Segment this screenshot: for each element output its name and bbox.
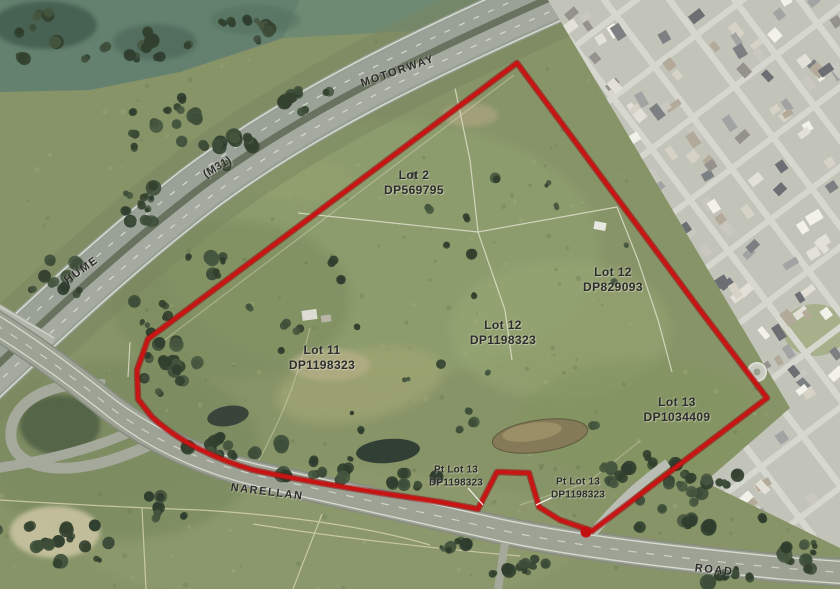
tree (309, 457, 319, 467)
speckle (422, 156, 426, 160)
speckle (518, 510, 520, 512)
tree (175, 376, 185, 386)
tree (60, 521, 73, 534)
tree (163, 107, 169, 113)
speckle (205, 379, 208, 382)
speckle (439, 395, 444, 400)
speckle (359, 294, 364, 299)
tree (190, 113, 203, 126)
speckle (457, 567, 461, 571)
speckle (573, 365, 578, 370)
tree (677, 481, 687, 491)
tree (33, 12, 41, 20)
tree (447, 547, 452, 552)
tree (76, 287, 83, 294)
speckle (140, 139, 143, 142)
speckle (171, 555, 174, 558)
tree (127, 216, 136, 225)
tree (43, 539, 54, 550)
tree (520, 558, 532, 570)
speckle (233, 364, 236, 367)
tree (15, 27, 22, 34)
speckle (546, 67, 550, 71)
boundary-corner-dot (581, 527, 592, 538)
speckle (576, 465, 581, 470)
speckle (470, 238, 474, 242)
speckle (98, 492, 102, 496)
tree (180, 513, 187, 520)
tree (120, 206, 130, 216)
tree (172, 365, 182, 375)
speckle (525, 366, 530, 371)
tree (50, 277, 60, 287)
speckle (35, 167, 40, 172)
tree (625, 244, 629, 248)
speckle (729, 532, 732, 535)
tree (544, 183, 548, 187)
tree (146, 34, 160, 48)
tree (349, 457, 354, 462)
speckle (558, 282, 562, 286)
tree (212, 139, 223, 150)
speckle (446, 305, 451, 310)
speckle (242, 258, 246, 262)
tree (123, 190, 129, 196)
tree (720, 572, 729, 581)
tree (149, 119, 163, 133)
speckle (132, 575, 135, 578)
tree (486, 370, 491, 375)
tree (198, 140, 208, 150)
speckle (528, 184, 532, 188)
tree (44, 7, 54, 17)
speckle (145, 308, 149, 312)
speckle (412, 303, 416, 307)
tree (156, 493, 164, 501)
speckle (377, 244, 380, 247)
speckle (573, 514, 577, 518)
tree (294, 86, 303, 95)
tree (129, 298, 139, 308)
speckle (614, 566, 619, 571)
speckle (575, 358, 578, 361)
homestead (301, 309, 317, 321)
tree (149, 195, 154, 200)
tree (297, 108, 306, 117)
speckle (587, 79, 589, 81)
tree (131, 143, 138, 150)
tree (184, 42, 192, 50)
tree (169, 338, 183, 352)
tree (140, 321, 144, 325)
speckle (614, 499, 616, 501)
tree (659, 505, 666, 512)
speckle (601, 304, 603, 306)
tree (177, 106, 185, 114)
speckle (356, 163, 361, 168)
speckle (592, 299, 594, 301)
tree (493, 175, 501, 183)
speckle (544, 164, 547, 167)
speckle (445, 444, 447, 446)
speckle (571, 407, 573, 409)
tree (799, 539, 810, 550)
tree (357, 426, 364, 433)
speckle (553, 354, 555, 356)
tree (218, 18, 224, 24)
speckle (323, 442, 327, 446)
speckle (48, 153, 52, 157)
speckle (5, 535, 8, 538)
speckle (240, 565, 243, 568)
speckle (136, 99, 139, 102)
speckle (703, 402, 705, 404)
speckle (257, 370, 262, 375)
tree (692, 498, 699, 505)
tree (643, 450, 652, 459)
tree (248, 448, 259, 459)
tree (282, 319, 291, 328)
tree (142, 374, 150, 382)
speckle (291, 440, 295, 444)
speckle (429, 278, 433, 282)
speckle (121, 109, 126, 114)
speckle (645, 471, 647, 473)
speckle (244, 399, 246, 401)
roundabout-island (754, 369, 761, 376)
tree (439, 360, 446, 367)
speckle (628, 322, 632, 326)
tree (350, 411, 354, 415)
bare-patch (290, 349, 370, 381)
speckle (442, 103, 444, 105)
tree (531, 564, 537, 570)
tree (634, 523, 643, 532)
tree (215, 272, 221, 278)
tree (224, 440, 234, 450)
speckle (43, 224, 46, 227)
speckle (398, 287, 400, 289)
tree (140, 215, 151, 226)
tree (781, 543, 792, 554)
speckle (543, 257, 545, 259)
tree (145, 322, 150, 327)
tree (60, 270, 74, 284)
speckle (433, 260, 436, 263)
tree (30, 286, 37, 293)
tree (530, 555, 537, 562)
tree (185, 253, 191, 259)
speckle (165, 409, 168, 412)
tree (159, 300, 167, 308)
tree (327, 259, 335, 267)
speckle (122, 553, 127, 558)
speckle (402, 236, 405, 239)
speckle (693, 463, 695, 465)
tree (466, 249, 477, 260)
speckle (581, 201, 584, 204)
speckle (576, 276, 581, 281)
tree (220, 257, 226, 263)
speckle (553, 467, 557, 471)
tree (317, 467, 327, 477)
tree (811, 550, 817, 556)
speckle (220, 65, 223, 68)
tree (680, 471, 687, 478)
speckle (546, 233, 551, 238)
tree (354, 324, 360, 330)
speckle (546, 354, 549, 357)
speckle (183, 583, 188, 588)
tree (129, 108, 137, 116)
speckle (730, 517, 734, 521)
speckle (188, 77, 193, 82)
tree (336, 275, 346, 285)
farm-shed (321, 314, 332, 322)
tree (154, 509, 162, 517)
speckle (363, 540, 367, 544)
speckle (304, 261, 308, 265)
speckle (549, 146, 552, 149)
tree (274, 439, 288, 453)
tree (410, 173, 416, 179)
speckle (145, 84, 149, 88)
speckle (108, 370, 110, 372)
tree (137, 201, 146, 210)
tree (38, 270, 51, 283)
speckle (165, 134, 169, 138)
tree (414, 481, 421, 488)
speckle (323, 515, 328, 520)
speckle (405, 321, 409, 325)
tree (71, 258, 84, 271)
tree (254, 18, 259, 23)
speckle (46, 216, 50, 220)
tree (611, 278, 618, 285)
speckle (229, 528, 233, 532)
speckle (532, 160, 536, 164)
speckle (342, 586, 345, 589)
tree (161, 357, 168, 364)
speckle (713, 389, 718, 394)
tree (336, 471, 350, 485)
tree (398, 478, 411, 491)
tree (554, 205, 559, 210)
speckle (273, 418, 276, 421)
tree (444, 242, 450, 248)
tree (648, 457, 658, 467)
speckle (565, 246, 569, 250)
tree (614, 470, 624, 480)
tree (522, 568, 528, 574)
speckle (513, 200, 517, 204)
speckle (379, 196, 383, 200)
speckle (787, 528, 790, 531)
tree (216, 433, 225, 442)
speckle (231, 569, 235, 573)
tree (172, 119, 182, 129)
tree (18, 52, 31, 65)
tree (681, 516, 692, 527)
speckle (108, 166, 112, 170)
aerial-cadastral-map: HUME (M31) MOTORWAY NARELLAN ROAD Lot 2 … (0, 0, 840, 589)
speckle (474, 320, 479, 325)
tree (465, 407, 472, 414)
tree (155, 388, 162, 395)
tree (759, 515, 767, 523)
tree (540, 558, 550, 568)
speckle (317, 586, 320, 589)
speckle (550, 346, 555, 351)
speckle (519, 218, 524, 223)
tree (148, 181, 158, 191)
speckle (570, 204, 574, 208)
speckle (622, 383, 626, 387)
tree (229, 132, 240, 143)
tree (472, 292, 476, 296)
speckle (734, 430, 737, 433)
speckle (113, 584, 116, 587)
speckle (278, 297, 281, 300)
tree (128, 130, 136, 138)
tree (103, 537, 115, 549)
speckle (491, 501, 495, 505)
tree (97, 558, 102, 563)
speckle (187, 525, 191, 529)
tree (464, 216, 470, 222)
tree (429, 470, 443, 484)
speckle (247, 58, 250, 61)
speckle (263, 73, 265, 75)
speckle (198, 403, 203, 408)
tree (278, 347, 285, 354)
tree (24, 522, 34, 532)
speckle (429, 228, 432, 231)
speckle (470, 482, 475, 487)
speckle (595, 91, 597, 93)
tree (124, 49, 136, 61)
tree (426, 206, 434, 214)
speckle (493, 241, 495, 243)
tree (397, 468, 408, 479)
tree (176, 136, 188, 148)
speckle (476, 475, 479, 478)
speckle (271, 217, 275, 221)
tree (262, 25, 274, 37)
speckle (425, 110, 427, 112)
tree (461, 538, 473, 550)
tree (49, 36, 61, 48)
tree (53, 559, 63, 569)
speckle (765, 413, 768, 416)
tree (154, 337, 165, 348)
tree (803, 564, 813, 574)
tree (802, 554, 812, 564)
speckle (573, 476, 575, 478)
speckle (501, 204, 506, 209)
speckle (539, 463, 544, 468)
speckle (412, 468, 416, 472)
speckle (562, 371, 566, 375)
tree (231, 453, 238, 460)
tree (456, 427, 463, 434)
tree (221, 160, 231, 170)
tree (205, 252, 219, 266)
speckle (127, 509, 132, 514)
tree (701, 520, 717, 536)
tree (155, 52, 165, 62)
speckle (313, 326, 316, 329)
tree (192, 360, 201, 369)
tree (33, 540, 44, 551)
tree (89, 519, 101, 531)
speckle (621, 270, 624, 273)
tree (60, 281, 71, 292)
speckle (554, 268, 558, 272)
tree (244, 17, 253, 26)
speckle (463, 353, 467, 357)
speckle (171, 304, 174, 307)
speckle (543, 380, 548, 385)
tree (226, 17, 235, 26)
tree (386, 476, 398, 488)
tree (745, 572, 753, 580)
tree (253, 35, 261, 43)
speckle (594, 411, 597, 414)
tree (468, 419, 477, 428)
speckle (121, 160, 123, 162)
speckle (13, 566, 15, 568)
tree (102, 42, 111, 51)
speckle (503, 262, 507, 266)
speckle (683, 370, 688, 375)
speckle (625, 179, 628, 182)
tree (243, 133, 253, 143)
tree (685, 475, 694, 484)
speckle (516, 275, 518, 277)
speckle (27, 199, 29, 201)
speckle (296, 561, 301, 566)
tree (601, 462, 608, 469)
speckle (659, 531, 662, 534)
tree (716, 479, 724, 487)
speckle (620, 168, 622, 170)
satellite-imagery (0, 0, 840, 589)
speckle (510, 193, 514, 197)
speckle (470, 574, 473, 577)
speckle (476, 312, 478, 314)
tree (812, 543, 818, 549)
tree (177, 93, 187, 103)
speckle (105, 108, 107, 110)
tree (248, 306, 254, 312)
speckle (341, 563, 343, 565)
tree (145, 208, 150, 213)
speckle (673, 504, 678, 509)
tree (489, 570, 497, 578)
speckle (554, 144, 556, 146)
tree (732, 470, 740, 478)
tree (731, 569, 740, 578)
tree (144, 491, 154, 501)
tree (293, 327, 301, 335)
tree (592, 421, 600, 429)
tree (406, 377, 411, 382)
tree (323, 89, 330, 96)
tree (502, 564, 516, 578)
tree (81, 55, 89, 63)
tree (47, 258, 55, 266)
